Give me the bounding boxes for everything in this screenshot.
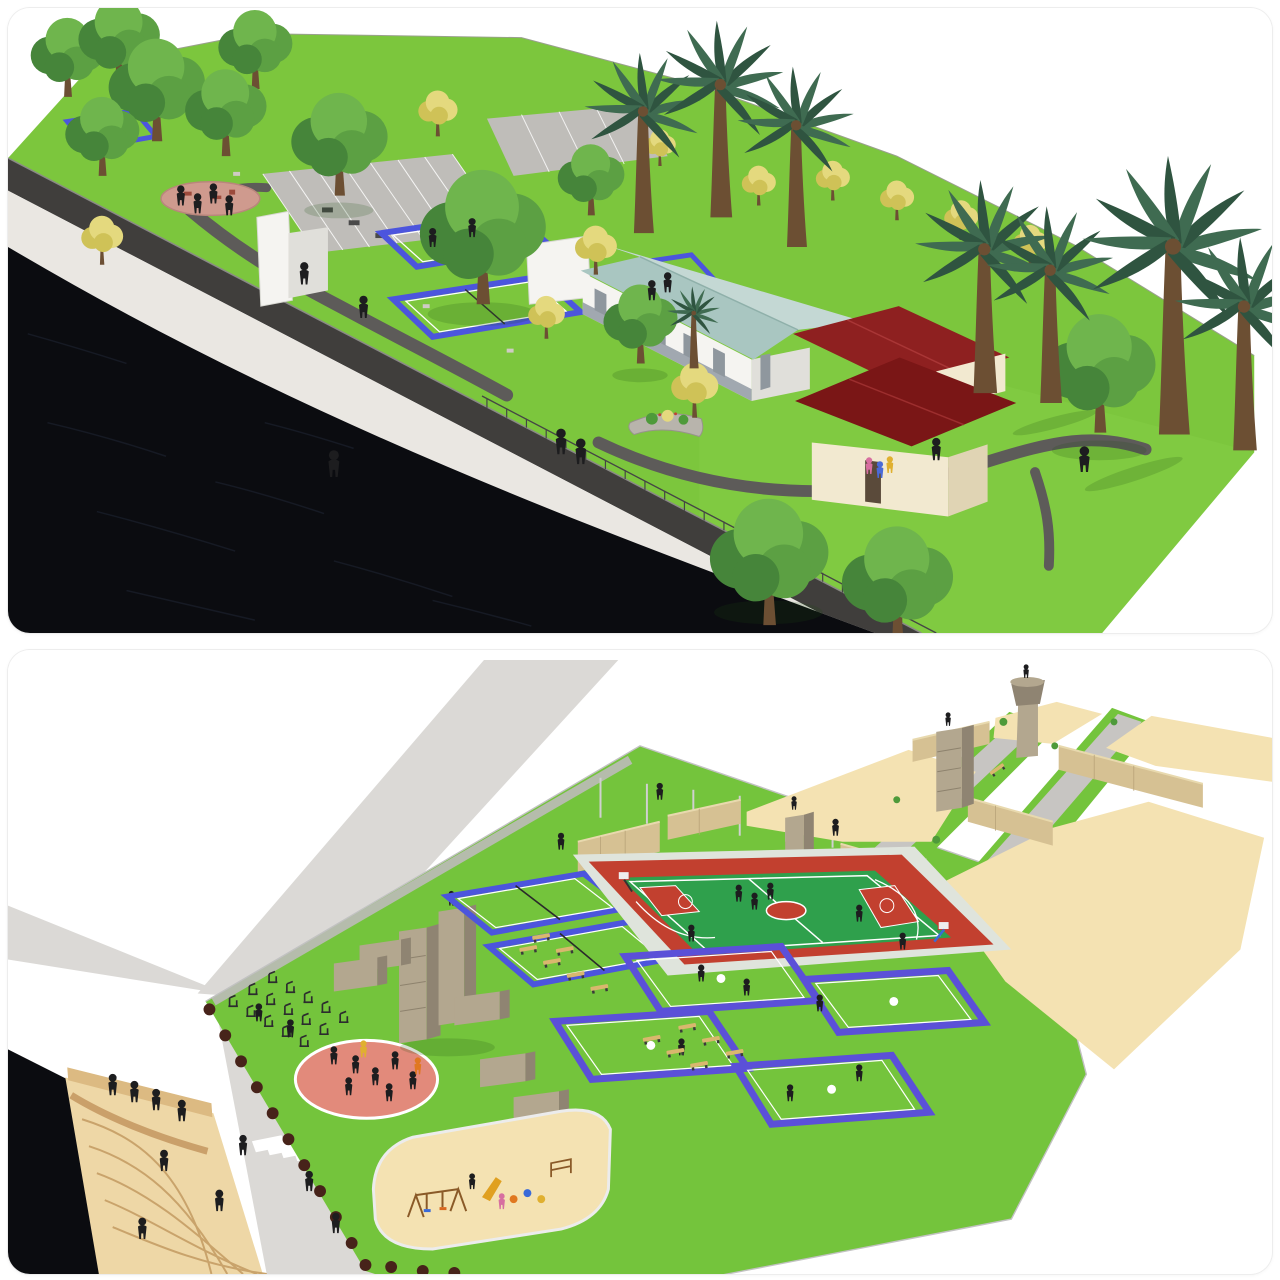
renderings-collage <box>0 0 1280 1280</box>
sports-complex-image <box>8 650 1272 1274</box>
riverside-park-svg <box>8 8 1272 633</box>
riverside-park-image <box>8 8 1272 633</box>
sports-complex-svg <box>8 650 1272 1274</box>
